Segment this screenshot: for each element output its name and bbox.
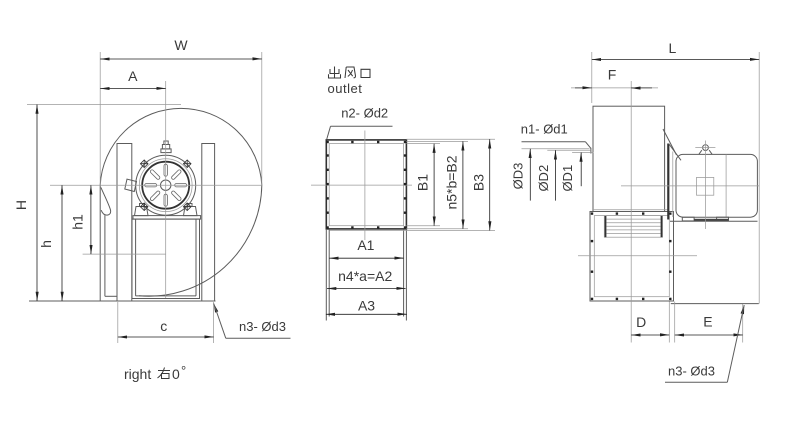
svg-text:W: W [174, 37, 188, 53]
svg-text:D: D [636, 314, 646, 330]
svg-text:ØD1: ØD1 [560, 165, 575, 192]
svg-text:H: H [13, 200, 29, 210]
svg-text:A1: A1 [357, 237, 374, 253]
svg-text:outlet: outlet [328, 81, 363, 96]
svg-text:B1: B1 [415, 174, 431, 191]
svg-text:A: A [128, 68, 138, 84]
svg-text:L: L [669, 40, 677, 56]
svg-text:n3- Ød3: n3- Ød3 [668, 364, 715, 379]
svg-text:ØD3: ØD3 [511, 163, 526, 190]
svg-text:n4*a=A2: n4*a=A2 [338, 268, 392, 284]
svg-text:0: 0 [172, 366, 180, 382]
svg-text:B3: B3 [470, 174, 486, 191]
svg-text:n3- Ød3: n3- Ød3 [239, 319, 286, 334]
svg-text:h: h [38, 240, 54, 248]
svg-text:right: right [124, 366, 151, 382]
svg-text:F: F [608, 67, 617, 83]
svg-text:n5*b=B2: n5*b=B2 [444, 155, 460, 209]
svg-text:h1: h1 [70, 214, 86, 230]
svg-text:°: ° [181, 363, 186, 378]
svg-text:E: E [703, 314, 712, 330]
svg-text:ØD2: ØD2 [536, 165, 551, 192]
svg-text:c: c [160, 318, 167, 334]
svg-text:A3: A3 [358, 298, 375, 314]
svg-text:n1- Ød1: n1- Ød1 [521, 122, 568, 137]
svg-text:n2- Ød2: n2- Ød2 [341, 106, 388, 121]
